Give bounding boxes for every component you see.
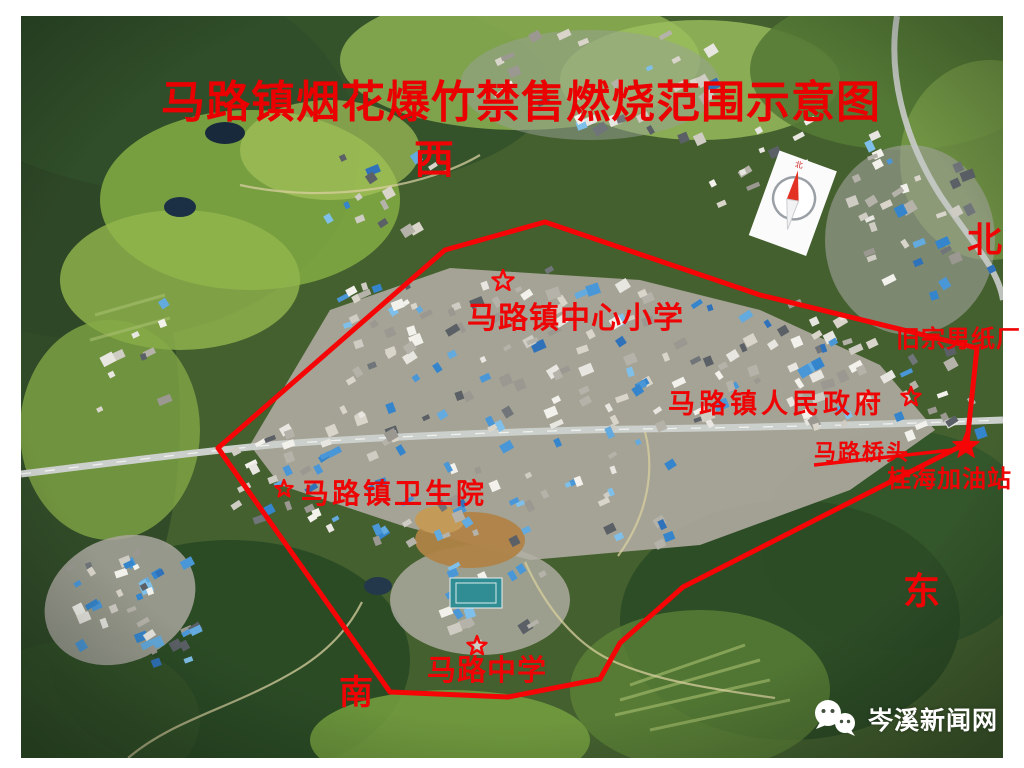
direction-east-label: 东 [903, 573, 940, 610]
watermark: 岑溪新闻网 [812, 698, 998, 740]
health-center-label: 马路镇卫生院 [301, 480, 487, 508]
government-label: 马路镇人民政府 [668, 391, 885, 418]
direction-north-label: 北 [967, 223, 1002, 258]
direction-south-label: 南 [339, 676, 373, 710]
direction-west-label: 西 [414, 140, 454, 180]
bridge-label: 马路桥头 [814, 442, 910, 464]
aerial-photo: 北 [21, 16, 1003, 758]
watermark-text: 岑溪新闻网 [868, 701, 998, 737]
map-title: 马路镇烟花爆竹禁售燃烧范围示意图 [161, 81, 881, 125]
primary-school-label: 马路镇中心小学 [467, 304, 684, 334]
vignette [21, 16, 1003, 758]
compass-label: 北 [794, 160, 803, 170]
gas-station-label: 桂海加油站 [887, 468, 1012, 492]
paper-factory-label: 旧宗男纸厂 [896, 328, 1021, 352]
middle-school-label: 马路中学 [427, 657, 547, 686]
wechat-icon [812, 698, 860, 740]
page: 北 马路镇烟花爆竹禁售燃烧范围示意图 西 北 东 南 马路镇中心小学 马路镇人民… [0, 0, 1024, 768]
